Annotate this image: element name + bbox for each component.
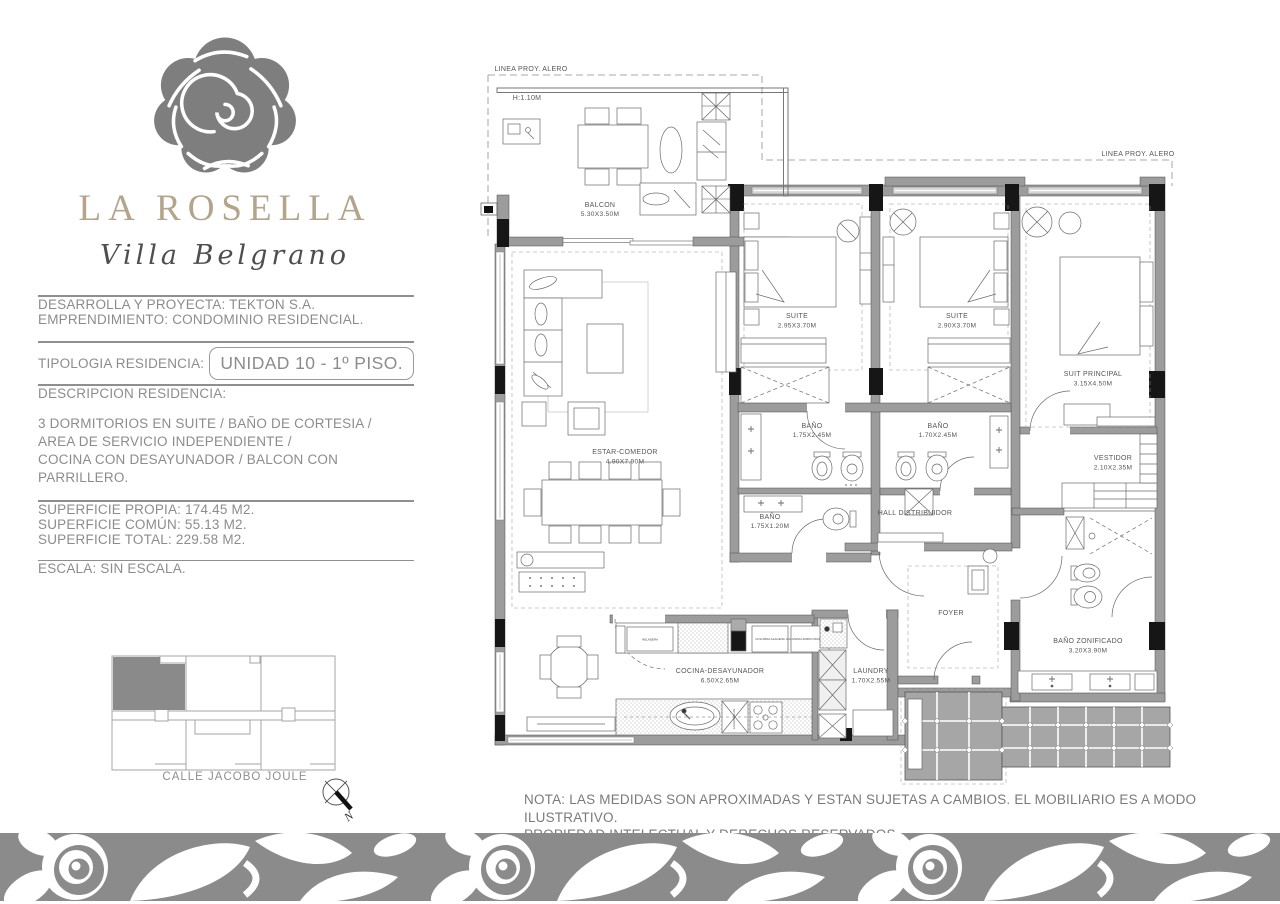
room-dims: 3.20X3.90M <box>1069 648 1108 655</box>
hall-foyer-furniture <box>878 533 997 594</box>
developer-line: DESARROLLA Y PROYECTA: TEKTON S.A. <box>38 297 414 312</box>
room-dims: 1.70X2.55M <box>852 678 891 685</box>
room-dims: 6.50X2.65M <box>701 678 740 685</box>
surface-own-line: SUPERFICIE PROPIA: 174.45 M2. <box>38 502 414 517</box>
description-lines: 3 DORMITORIOS EN SUITE / BAÑO DE CORTESI… <box>38 415 414 487</box>
suite1-furniture <box>741 213 871 403</box>
room-label: BALCON <box>585 202 616 209</box>
room-label: SUIT PRINCIPAL <box>1064 371 1122 378</box>
compass-north-label: N <box>340 808 356 825</box>
room-dims: 1.75X2.45M <box>793 432 832 439</box>
description-line: AREA DE SERVICIO INDEPENDIENTE / <box>38 433 414 451</box>
room-label: BAÑO <box>927 421 948 430</box>
room-label: COCINA-DESAYUNADOR <box>676 668 765 675</box>
brand-name: LA ROSELLA <box>58 187 392 230</box>
room-label: HALL DISTRIBUIDOR <box>878 510 952 517</box>
master-bath-fixtures <box>1018 511 1157 693</box>
rose-icon <box>140 28 310 178</box>
decorative-rose-border <box>0 833 1280 901</box>
info-panel: DESARROLLA Y PROYECTA: TEKTON S.A. EMPRE… <box>38 295 414 576</box>
room-dims: 4.90X7.90M <box>606 459 645 466</box>
note-line: NOTA: LAS MEDIDAS SON APROXIMADAS Y ESTA… <box>524 791 1264 826</box>
room-dims: 2.10X2.35M <box>1094 465 1133 472</box>
description-label: DESCRIPCION RESIDENCIA: <box>38 386 414 401</box>
floorplan-sheet: LA ROSELLA Villa Belgrano DESARROLLA Y P… <box>0 0 1280 904</box>
typology-value: UNIDAD 10 - 1º PISO. <box>209 347 414 380</box>
surface-total-line: SUPERFICIE TOTAL: 229.58 M2. <box>38 532 414 547</box>
room-dims: 2.90X3.70M <box>938 323 977 330</box>
scale-line: ESCALA: SIN ESCALA. <box>38 561 414 576</box>
typology-label: TIPOLOGIA RESIDENCIA: <box>38 356 204 371</box>
brand-logo: LA ROSELLA Villa Belgrano <box>58 28 392 271</box>
room-label: BAÑO <box>759 512 780 521</box>
kitchen-unit-label: LAVAVAJILLAS <box>732 709 736 729</box>
street-label: CALLE JACOBO JOULE <box>135 771 335 783</box>
surface-common-line: SUPERFICIE COMÚN: 55.13 M2. <box>38 517 414 532</box>
sliding-door <box>563 239 693 246</box>
room-label: BAÑO ZONIFICADO <box>1053 636 1123 645</box>
brand-subtitle: Villa Belgrano <box>58 240 392 271</box>
kitchen-unit-label: HELADERA <box>642 638 658 642</box>
room-dims: 5.30X3.50M <box>581 211 620 218</box>
suite-principal-furniture <box>1022 207 1155 426</box>
key-plan <box>100 642 350 772</box>
project-line: EMPRENDIMIENTO: CONDOMINIO RESIDENCIAL. <box>38 312 414 327</box>
description-line: 3 DORMITORIOS EN SUITE / BAÑO DE CORTESI… <box>38 415 414 433</box>
typology-row: TIPOLOGIA RESIDENCIA: UNIDAD 10 - 1º PIS… <box>38 347 414 380</box>
divider <box>38 341 414 343</box>
room-label: SUITE <box>786 313 808 320</box>
balcony-height-label: H:1.10M <box>513 95 542 102</box>
room-dims: 2.95X3.70M <box>778 323 817 330</box>
kitchen-unit-label: COLUMNA ALACENA <box>755 637 785 641</box>
room-label: ESTAR-COMEDOR <box>592 449 658 456</box>
description-line: COCINA CON DESAYUNADOR / BALCON CON PARR… <box>38 451 414 487</box>
room-label: VESTIDOR <box>1094 455 1132 462</box>
room-dims: 1.70X2.45M <box>919 432 958 439</box>
downspout <box>481 203 497 215</box>
bath2-fixtures <box>896 416 1008 481</box>
room-label: FOYER <box>938 610 964 617</box>
suite2-furniture <box>883 209 1010 403</box>
living-furniture <box>517 270 736 731</box>
room-label: BAÑO <box>801 421 822 430</box>
room-label: SUITE <box>946 313 968 320</box>
room-label: LAUNDRY <box>853 668 888 675</box>
room-dims: 3.15X4.50M <box>1074 381 1113 388</box>
compass-icon: N <box>314 772 370 834</box>
floor-plan: LINEA PROY. ALERO LINEA PROY. ALERO H:1.… <box>478 58 1180 788</box>
room-dims: 1.75X1.20M <box>751 523 790 530</box>
deck-pergola <box>902 692 1173 780</box>
unit-highlight <box>113 657 185 710</box>
alero-label-left: LINEA PROY. ALERO <box>494 66 567 73</box>
balcony-furniture <box>503 93 730 215</box>
alero-label-right: LINEA PROY. ALERO <box>1101 151 1174 158</box>
